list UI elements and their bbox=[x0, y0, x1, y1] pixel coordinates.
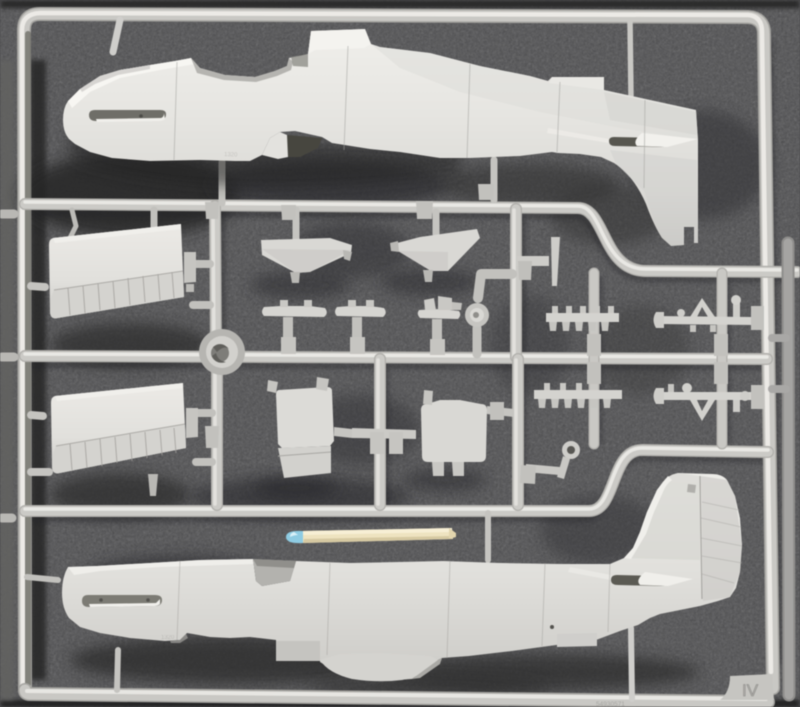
svg-text:1320: 1320 bbox=[224, 152, 238, 158]
svg-text:IV: IV bbox=[742, 681, 759, 700]
svg-text:54930571: 54930571 bbox=[596, 701, 625, 707]
svg-text:1320: 1320 bbox=[161, 635, 175, 641]
